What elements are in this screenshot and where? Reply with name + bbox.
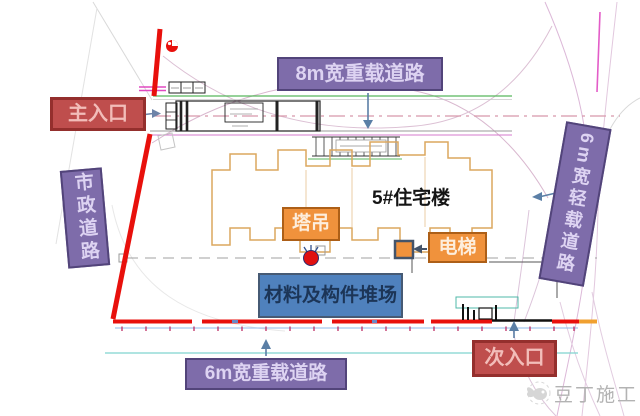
main-entrance-label: 主入口: [50, 97, 146, 131]
tower-crane-label: 塔吊: [282, 207, 340, 241]
bottom-road-label: 6m宽重载道路: [185, 358, 347, 390]
gatehouse-structures: [158, 82, 320, 150]
secondary-gate-structure: [456, 297, 518, 320]
secondary-entrance-arrow-icon: [509, 321, 519, 338]
elevator-marker: [395, 241, 413, 258]
watermark-logo-icon: [522, 379, 552, 412]
crane-rail-line: [119, 254, 597, 262]
unloading-platform-grid: [308, 137, 402, 159]
top-road-arrow-icon: [363, 93, 373, 129]
elevator-label: 电梯: [428, 232, 487, 263]
tower-crane-marker: [304, 245, 326, 266]
materials-yard-label: 材料及构件堆场: [258, 273, 403, 318]
secondary-entrance-label: 次入口: [472, 340, 557, 377]
wash-station-marker: [166, 40, 178, 52]
municipal-road-label: 市政道路: [60, 167, 110, 268]
building-label: 5#住宅楼: [372, 183, 450, 210]
watermark-text: 豆丁施工: [554, 380, 638, 407]
top-road-label: 8m宽重载道路: [277, 57, 443, 91]
construction-site-plan: 8m宽重载道路 主入口 市政道路 6m宽轻载道路 5#住宅楼 塔吊 电梯 材料及…: [0, 0, 640, 416]
